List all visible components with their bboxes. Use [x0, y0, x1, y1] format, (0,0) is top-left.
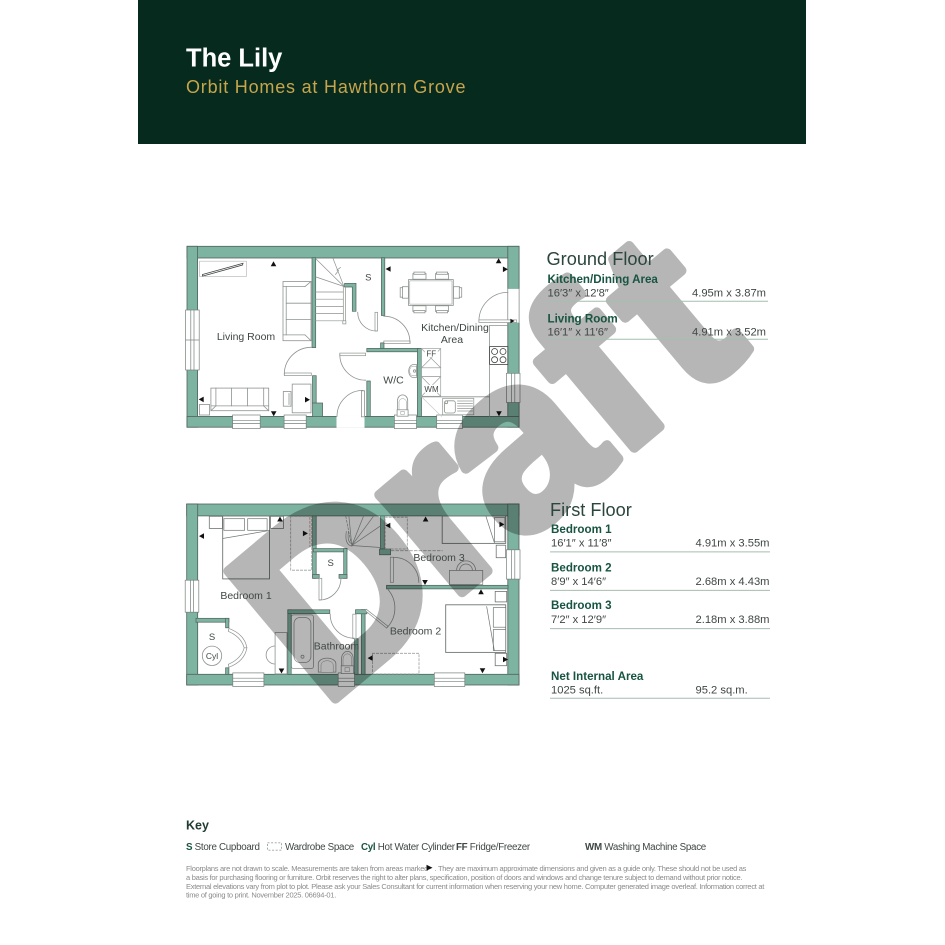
svg-text:Floorplans are not drawn to sc: Floorplans are not drawn to scale. Measu…	[186, 864, 428, 873]
svg-text:Wardrobe Space: Wardrobe Space	[285, 842, 355, 853]
svg-text:Bedroom 2: Bedroom 2	[551, 562, 612, 575]
svg-text:8′9″ x 14′6″: 8′9″ x 14′6″	[551, 576, 606, 588]
svg-text:Bedroom 1: Bedroom 1	[551, 523, 612, 536]
svg-text:S: S	[365, 272, 371, 283]
svg-text:16′3″ x 12′8″: 16′3″ x 12′8″	[548, 288, 609, 300]
svg-text:16′1″ x 11′8″: 16′1″ x 11′8″	[551, 538, 611, 550]
svg-text:4.95m x 3.87m: 4.95m x 3.87m	[692, 288, 766, 300]
svg-text:2.68m x 4.43m: 2.68m x 4.43m	[696, 576, 770, 588]
svg-text:S Store Cupboard: S Store Cupboard	[186, 842, 260, 853]
svg-text:Kitchen/Dining Area: Kitchen/Dining Area	[548, 273, 659, 286]
svg-text:Bedroom 2: Bedroom 2	[390, 626, 442, 638]
svg-text:WM: WM	[424, 385, 439, 394]
svg-text:Bedroom 1: Bedroom 1	[220, 590, 272, 602]
svg-text:. They are maximum approximate: . They are maximum approximate dimension…	[435, 864, 747, 873]
svg-text:FF Fridge/Freezer: FF Fridge/Freezer	[456, 842, 531, 853]
svg-text:Kitchen/Dining: Kitchen/Dining	[421, 322, 489, 334]
svg-text:Cyl Hot Water Cylinder: Cyl Hot Water Cylinder	[361, 842, 456, 853]
svg-text:95.2 sq.m.: 95.2 sq.m.	[696, 685, 748, 697]
svg-text:Net Internal Area: Net Internal Area	[551, 670, 644, 683]
svg-text:Bedroom 3: Bedroom 3	[413, 552, 465, 564]
svg-text:Orbit Homes at Hawthorn Grove: Orbit Homes at Hawthorn Grove	[186, 77, 466, 97]
svg-text:External elevations vary from: External elevations vary from plot to pl…	[186, 882, 765, 891]
svg-text:W/C: W/C	[383, 375, 404, 387]
svg-text:Key: Key	[186, 819, 209, 833]
svg-text:S: S	[328, 558, 334, 569]
svg-text:4.91m x 3.52m: 4.91m x 3.52m	[692, 327, 766, 339]
svg-text:FF: FF	[426, 349, 436, 358]
svg-text:16′1″ x 11′6″: 16′1″ x 11′6″	[548, 327, 608, 339]
svg-text:2.18m x 3.88m: 2.18m x 3.88m	[696, 614, 770, 626]
svg-text:First Floor: First Floor	[550, 500, 632, 520]
svg-text:The Lily: The Lily	[186, 45, 283, 73]
svg-text:Living Room: Living Room	[217, 331, 276, 343]
svg-text:4.91m x 3.55m: 4.91m x 3.55m	[696, 538, 770, 550]
svg-text:Ground Floor: Ground Floor	[547, 249, 654, 269]
svg-text:1025 sq.ft.: 1025 sq.ft.	[551, 685, 603, 697]
svg-text:Area: Area	[441, 334, 463, 346]
svg-text:Cyl: Cyl	[206, 651, 218, 661]
svg-text:WM Washing Machine Space: WM Washing Machine Space	[585, 842, 707, 853]
svg-text:S: S	[209, 632, 215, 643]
svg-text:7′2″ x 12′9″: 7′2″ x 12′9″	[551, 614, 606, 626]
svg-text:Bathroom: Bathroom	[314, 641, 360, 653]
svg-text:Living Room: Living Room	[548, 312, 618, 325]
svg-text:Bedroom 3: Bedroom 3	[551, 599, 612, 612]
svg-text:a basis for purchasing floorin: a basis for purchasing flooring or furni…	[186, 873, 742, 882]
svg-text:time of going to print. Novemb: time of going to print. November 2025. 0…	[186, 891, 336, 900]
